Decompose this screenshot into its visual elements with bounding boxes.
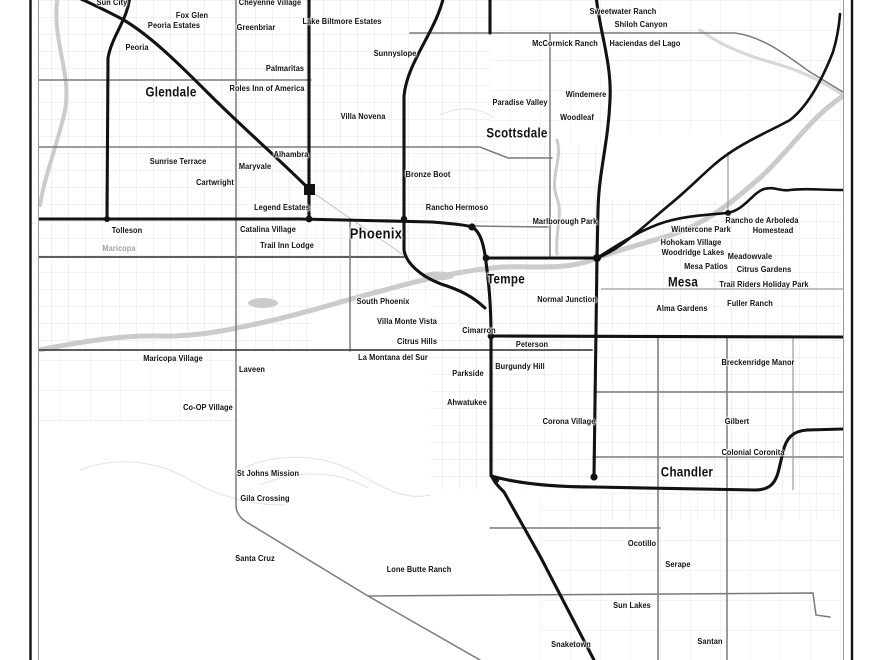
city-label: Chandler xyxy=(661,465,713,480)
place-label: Corona Village xyxy=(543,416,596,426)
place-label: Paradise Valley xyxy=(492,97,547,107)
place-label: Fox Glen xyxy=(176,10,208,20)
place-label: Sunrise Terrace xyxy=(150,156,207,166)
place-label: Rancho de Arboleda xyxy=(725,215,798,225)
place-label: Homestead xyxy=(753,225,794,235)
place-label: Breckenridge Manor xyxy=(721,357,794,367)
city-label: Glendale xyxy=(145,85,196,100)
place-label: Burgundy Hill xyxy=(495,361,545,371)
place-label: Co-OP Village xyxy=(183,402,233,412)
place-label: Sun City xyxy=(97,0,128,7)
place-label: Trail Inn Lodge xyxy=(260,240,314,250)
place-label: Fuller Ranch xyxy=(727,298,773,308)
place-label: Gila Crossing xyxy=(240,493,289,503)
place-label: Normal Junction xyxy=(537,294,597,304)
place-label: Cimarron xyxy=(462,325,496,335)
place-label: Mesa Patios xyxy=(684,261,728,271)
place-label: Santa Cruz xyxy=(235,553,274,563)
place-label: Catalina Village xyxy=(240,224,296,234)
place-label: Gilbert xyxy=(725,416,749,426)
place-label: Windemere xyxy=(566,89,607,99)
place-label: La Montana del Sur xyxy=(358,352,428,362)
place-label: Woodridge Lakes xyxy=(662,247,725,257)
place-label: Cartwright xyxy=(196,177,234,187)
place-label: Sweetwater Ranch xyxy=(590,6,657,16)
place-label: Ocotillo xyxy=(628,538,656,548)
place-label: Sun Lakes xyxy=(613,600,651,610)
place-label: Rancho Hermoso xyxy=(426,202,488,212)
place-label: Tolleson xyxy=(112,225,143,235)
place-label: Alhambra xyxy=(274,149,309,159)
place-label: South Phoenix xyxy=(357,296,410,306)
place-label: Peoria Estates xyxy=(148,20,200,30)
place-label: Villa Monte Vista xyxy=(377,316,437,326)
place-label: Haciendas del Lago xyxy=(610,38,681,48)
place-label: Peterson xyxy=(516,339,548,349)
place-label: Ahwatukee xyxy=(447,397,487,407)
place-label: Lake Biltmore Estates xyxy=(302,16,381,26)
city-label: Scottsdale xyxy=(486,126,547,141)
place-label: Trail Riders Holiday Park xyxy=(719,279,808,289)
map-poster: Sun CityCheyenne VillageSweetwater Ranch… xyxy=(0,0,880,660)
place-label: Roles Inn of America xyxy=(230,83,305,93)
place-label: Santan xyxy=(697,636,722,646)
city-label: Tempe xyxy=(487,272,525,287)
place-label: Greenbriar xyxy=(237,22,276,32)
place-label: Marlborough Park xyxy=(533,216,598,226)
place-label: Bronze Boot xyxy=(406,169,451,179)
place-label: Hohokam Village xyxy=(661,237,722,247)
place-label: Wintercone Park xyxy=(671,224,731,234)
place-label: Alma Gardens xyxy=(656,303,707,313)
place-label: Colonial Coronita xyxy=(721,447,784,457)
place-label: Shiloh Canyon xyxy=(615,19,668,29)
place-label: Maryvale xyxy=(239,161,271,171)
map-labels-layer: Sun CityCheyenne VillageSweetwater Ranch… xyxy=(0,0,880,660)
place-label: McCormick Ranch xyxy=(532,38,598,48)
city-label: Phoenix xyxy=(350,226,403,243)
place-label: Woodleaf xyxy=(560,112,594,122)
place-label: Cheyenne Village xyxy=(239,0,301,7)
county-label: Maricopa xyxy=(102,243,135,253)
place-label: Snaketown xyxy=(551,639,591,649)
place-label: Parkside xyxy=(452,368,484,378)
place-label: Peoria xyxy=(125,42,148,52)
place-label: Lone Butte Ranch xyxy=(387,564,452,574)
place-label: Serape xyxy=(665,559,690,569)
place-label: Meadowvale xyxy=(728,251,772,261)
place-label: St Johns Mission xyxy=(237,468,299,478)
place-label: Citrus Gardens xyxy=(737,264,792,274)
place-label: Palmaritas xyxy=(266,63,304,73)
place-label: Sunnyslope xyxy=(374,48,417,58)
place-label: Villa Novena xyxy=(341,111,386,121)
place-label: Citrus Hills xyxy=(397,336,437,346)
city-label: Mesa xyxy=(668,275,698,290)
place-label: Maricopa Village xyxy=(143,353,203,363)
place-label: Laveen xyxy=(239,364,265,374)
place-label: Legend Estates xyxy=(254,202,310,212)
